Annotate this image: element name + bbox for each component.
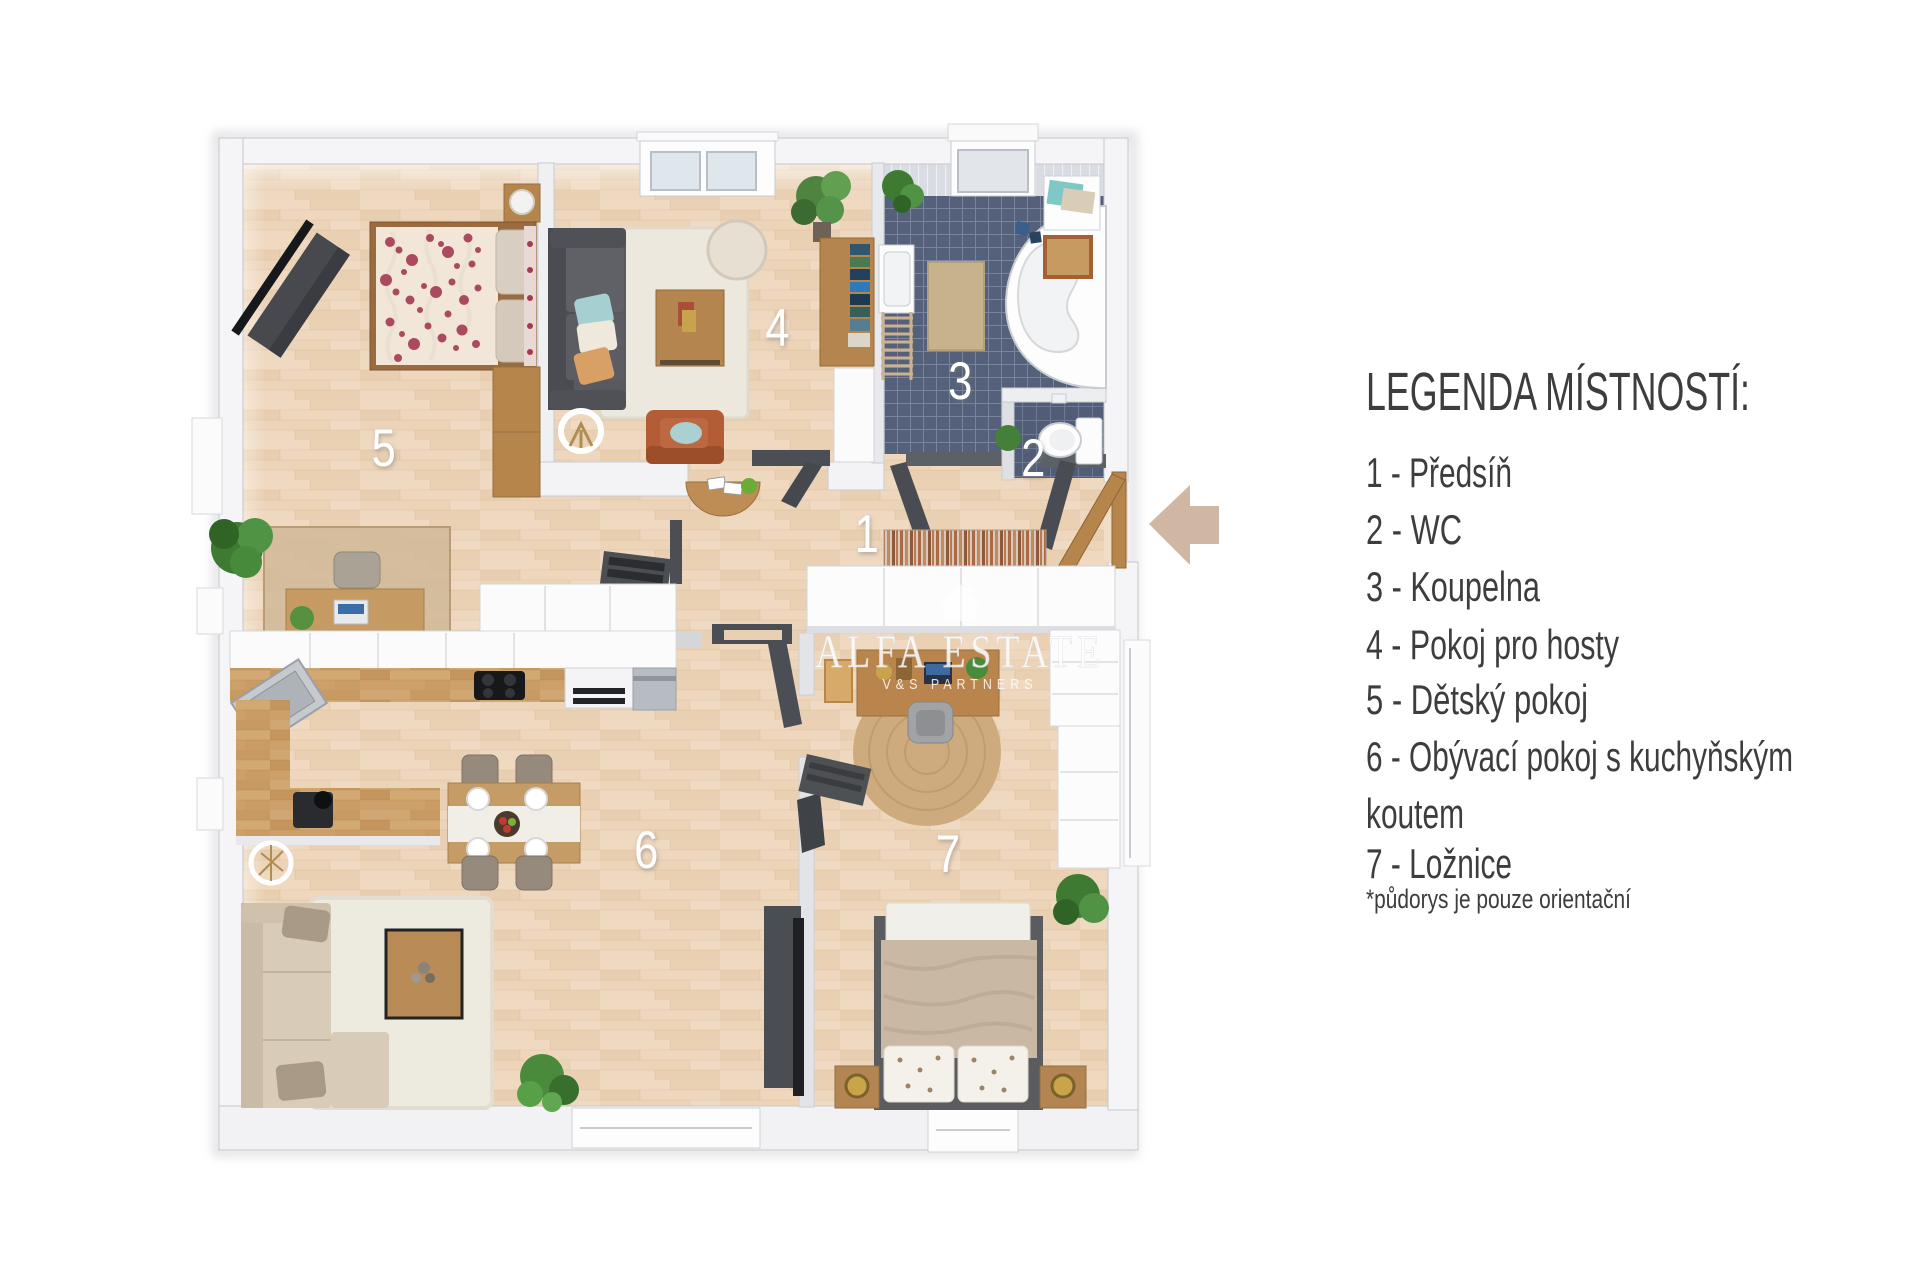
- svg-text:3 - Koupelna: 3 - Koupelna: [1366, 563, 1540, 610]
- svg-text:5: 5: [372, 419, 396, 478]
- svg-text:3: 3: [948, 352, 972, 411]
- svg-text:2: 2: [1021, 429, 1045, 488]
- svg-text:7: 7: [936, 825, 960, 884]
- svg-text:4: 4: [765, 299, 789, 358]
- svg-text:V&S PARTNERS: V&S PARTNERS: [883, 676, 1038, 693]
- svg-text:LEGENDA MÍSTNOSTÍ:: LEGENDA MÍSTNOSTÍ:: [1366, 362, 1750, 422]
- svg-text:7 - Ložnice: 7 - Ložnice: [1366, 840, 1512, 887]
- svg-text:5 - Dětský pokoj: 5 - Dětský pokoj: [1366, 676, 1588, 723]
- svg-text:*půdorys je pouze orientační: *půdorys je pouze orientační: [1366, 884, 1631, 914]
- svg-text:6: 6: [634, 821, 658, 880]
- svg-text:6 - Obývací pokoj s kuchyňským: 6 - Obývací pokoj s kuchyňským: [1366, 733, 1793, 780]
- svg-text:4 - Pokoj pro hosty: 4 - Pokoj pro hosty: [1366, 621, 1619, 668]
- svg-text:2 - WC: 2 - WC: [1366, 506, 1462, 553]
- svg-text:1: 1: [855, 505, 879, 564]
- svg-text:koutem: koutem: [1366, 790, 1464, 837]
- svg-text:1 - Předsíň: 1 - Předsíň: [1366, 449, 1512, 496]
- svg-text:ALFA ESTATE: ALFA ESTATE: [815, 626, 1105, 678]
